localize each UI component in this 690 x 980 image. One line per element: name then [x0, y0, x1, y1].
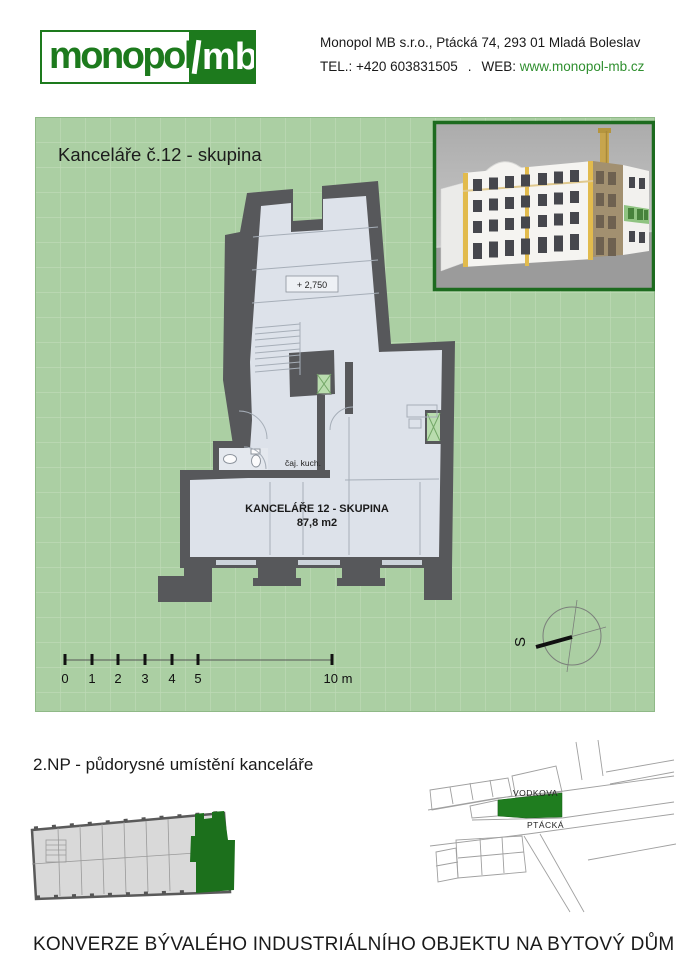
- svg-text:4: 4: [168, 671, 175, 686]
- svg-text:5: 5: [194, 671, 201, 686]
- logo-text-mb: mb: [202, 33, 256, 81]
- web-label: WEB:: [482, 59, 517, 74]
- company-address: Monopol MB s.r.o., Ptácká 74, 293 01 Mla…: [320, 31, 644, 55]
- company-contacts: TEL.: +420 603831505.WEB: www.monopol-mb…: [320, 55, 644, 79]
- shaft-2: [425, 410, 442, 444]
- contact-separator: .: [468, 59, 472, 74]
- render-left-building: [441, 183, 463, 271]
- map-street-top-label: VODKOVA: [513, 788, 558, 798]
- company-info: Monopol MB s.r.o., Ptácká 74, 293 01 Mla…: [320, 31, 644, 79]
- building-render-inset: [433, 121, 655, 291]
- map-street-bottom-label: PTÁCKÁ: [527, 820, 564, 830]
- shaft-1: [317, 374, 331, 394]
- svg-text:0: 0: [61, 671, 68, 686]
- document-page: monopol mb Monopol MB s.r.o., Ptácká 74,…: [0, 0, 690, 980]
- room-area-label: 87,8 m2: [297, 517, 337, 529]
- overview-highlight-office: [190, 811, 235, 893]
- svg-text:1: 1: [88, 671, 95, 686]
- room-name-label: KANCELÁŘE 12 - SKUPINA: [245, 502, 389, 515]
- facade-windows: [216, 560, 422, 565]
- logo-divider: [192, 40, 202, 74]
- logo-text-monopol: monopol: [42, 32, 192, 82]
- company-phone: TEL.: +420 603831505: [320, 59, 458, 74]
- logo-green-box: mb: [189, 32, 256, 82]
- overview-plan: [28, 806, 263, 918]
- company-website-link[interactable]: www.monopol-mb.cz: [520, 59, 645, 74]
- compass-north-label: S: [512, 637, 529, 647]
- location-map: VODKOVA PTÁCKÁ: [428, 740, 676, 918]
- plan-title: Kanceláře č.12 - skupina: [58, 144, 262, 165]
- company-logo: monopol mb: [40, 30, 256, 84]
- scale-end-label: 10 m: [324, 671, 353, 686]
- location-section-title: 2.NP - půdorysné umístění kanceláře: [33, 755, 313, 775]
- floor-plan-panel: Kanceláře č.12 - skupina: [35, 117, 655, 712]
- level-label: + 2,750: [297, 280, 327, 290]
- footer-title: KONVERZE BÝVALÉHO INDUSTRIÁLNÍHO OBJEKTU…: [33, 934, 674, 956]
- svg-text:3: 3: [141, 671, 148, 686]
- kitchen-label: čaj. kuch.: [285, 458, 321, 468]
- svg-text:2: 2: [114, 671, 121, 686]
